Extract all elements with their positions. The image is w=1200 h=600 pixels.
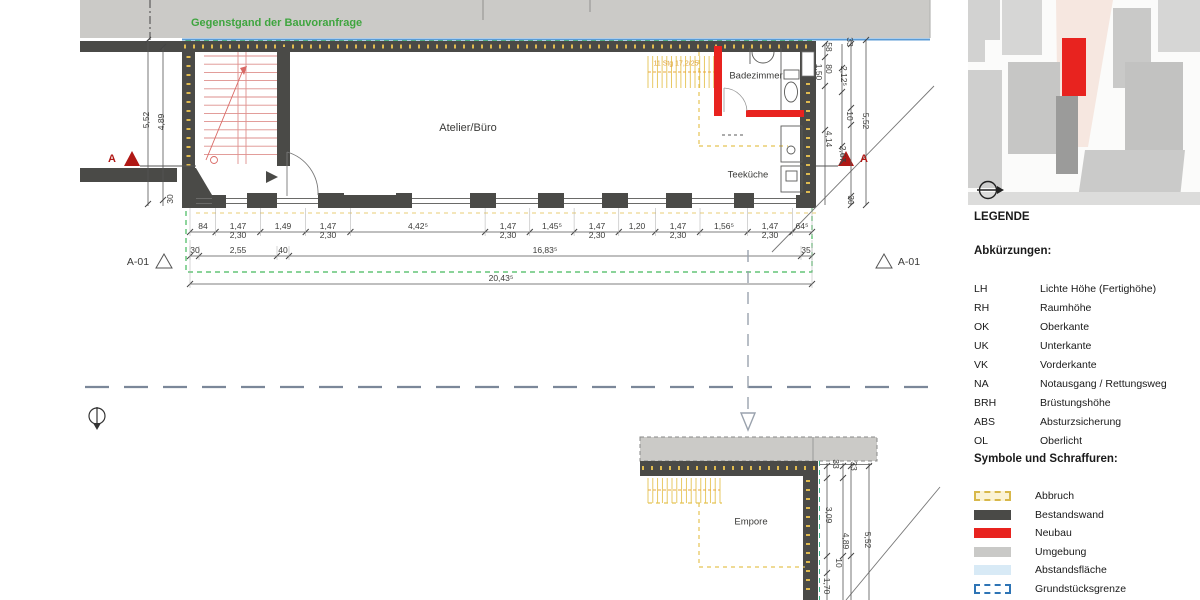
rotation-symbol <box>89 407 105 430</box>
dim-label-pair: 1,472,30 <box>500 222 517 240</box>
dim-label: 1,20 <box>629 221 646 231</box>
dim-label: 30 <box>846 195 856 204</box>
dim-label: 2,12⁵ <box>839 66 849 86</box>
dim-label: 1,45⁵ <box>542 221 562 231</box>
room-label-atelier: Atelier/Büro <box>439 122 496 134</box>
grundstuecksgrenze-swatch <box>974 584 1011 594</box>
dim-label: 58 <box>824 42 834 51</box>
symbol-label: Neubau <box>1035 527 1072 539</box>
entry-arrow-icon <box>266 171 278 183</box>
abbr-term: Oberkante <box>1040 321 1089 333</box>
dim-label: 33 <box>845 37 855 46</box>
dim-label-pair: 1,472,30 <box>670 222 687 240</box>
room-label-empore: Empore <box>734 517 767 528</box>
dim-subvalue: 2,30 <box>762 231 779 240</box>
dim-label: 35 <box>801 245 810 255</box>
legend-symbol-row: Neubau <box>974 527 1200 541</box>
abbr-term: Lichte Höhe (Fertighöhe) <box>1040 283 1156 295</box>
dim-label: 5,52 <box>141 112 151 129</box>
abstandsflaeche-swatch <box>974 565 1011 575</box>
dim-label-pair: 1,472,30 <box>230 222 247 240</box>
legend-symbol-row: Bestandswand <box>974 509 1200 523</box>
stair-note: 11 Stg 17,2/25 <box>653 61 698 68</box>
dim-label: 30 <box>190 245 199 255</box>
lower-plan <box>640 437 940 600</box>
dim-label: 4,89 <box>156 114 166 131</box>
section-label-a-right: A <box>860 153 868 165</box>
dim-label: 5,52 <box>861 113 871 130</box>
legend-abbr-row: LHLichte Höhe (Fertighöhe) <box>974 283 1194 299</box>
legend-abbr-title: Abkürzungen: <box>974 245 1051 257</box>
abbruch-hatch-lower <box>648 478 720 503</box>
abbr-code: ABS <box>974 416 995 428</box>
bestandswand-swatch <box>974 510 1011 520</box>
subject-building-red <box>1062 38 1086 96</box>
legend-symbol-row: Abstandsfläche <box>974 564 1200 578</box>
abbr-code: OL <box>974 435 988 447</box>
abbr-code: UK <box>974 340 989 352</box>
bathroom-fixtures <box>722 48 799 135</box>
bestandswand <box>80 41 182 52</box>
legend-abbr-row: VKVorderkante <box>974 359 1194 375</box>
dim-subvalue: 2,30 <box>670 231 687 240</box>
dim-label: 10 <box>845 111 855 120</box>
dim-label: 4,14 <box>824 131 834 148</box>
dim-subvalue: 2,30 <box>320 231 337 240</box>
dim-label: 33 <box>831 459 841 468</box>
dim-label: 1,70 <box>822 578 832 595</box>
section-triangle-left <box>124 151 140 166</box>
abbr-term: Unterkante <box>1040 340 1091 352</box>
abbr-code: OK <box>974 321 989 333</box>
room-label-badezimmer: Badezimmer <box>729 71 782 82</box>
dim-label: 4,89 <box>841 533 851 550</box>
legend-abbr-row: ABSAbsturzsicherung <box>974 416 1194 432</box>
kitchen-fixtures <box>781 126 802 192</box>
view-direction-arrow <box>741 250 755 430</box>
legend-symbol-row: Abbruch <box>974 490 1200 504</box>
umgebung-swatch <box>974 547 1011 557</box>
site-map <box>968 0 1200 205</box>
elevation-triangle-left <box>156 254 172 268</box>
symbol-label: Abstandsfläche <box>1035 564 1107 576</box>
abbr-code: BRH <box>974 397 996 409</box>
legend-symbol-row: Umgebung <box>974 546 1200 560</box>
legend-abbr-row: BRHBrüstungshöhe <box>974 397 1194 413</box>
legend-symbols-title: Symbole und Schraffuren: <box>974 453 1118 465</box>
symbol-label: Bestandswand <box>1035 509 1104 521</box>
room-label-teekueche: Teeküche <box>728 170 769 181</box>
legend-title: LEGENDE <box>974 211 1030 223</box>
dim-label: 84 <box>198 221 207 231</box>
legend-abbr-row: UKUnterkante <box>974 340 1194 356</box>
dim-label: 30 <box>165 194 175 203</box>
dim-label: 16,83⁵ <box>533 245 558 255</box>
neubau-swatch <box>974 528 1011 538</box>
legend-abbr-row: OLOberlicht <box>974 435 1194 451</box>
dim-label: 10 <box>834 558 844 567</box>
dim-subvalue: 2,30 <box>230 231 247 240</box>
dim-label: 5,52 <box>863 532 873 549</box>
dim-label-pair: 1,472,30 <box>762 222 779 240</box>
abbr-code: VK <box>974 359 988 371</box>
dim-label: 20,43⁵ <box>489 273 514 283</box>
abbr-term: Vorderkante <box>1040 359 1097 371</box>
legend-abbr-row: OKOberkante <box>974 321 1194 337</box>
dim-label: 1,56⁵ <box>714 221 734 231</box>
dim-label: 80 <box>824 64 834 73</box>
elevation-label-a01-left: A-01 <box>127 256 149 268</box>
abbr-term: Raumhöhe <box>1040 302 1091 314</box>
abbr-code: LH <box>974 283 987 295</box>
staircase <box>204 52 277 164</box>
abbr-code: RH <box>974 302 989 314</box>
window-wall <box>196 193 816 208</box>
dim-label-pair: 1,472,30 <box>589 222 606 240</box>
abbr-term: Notausgang / Rettungsweg <box>1040 378 1167 390</box>
legend-symbol-row: Grundstücksgrenze <box>974 583 1200 597</box>
abbr-term: Brüstungshöhe <box>1040 397 1111 409</box>
dim-label: 2,67 <box>838 146 848 163</box>
abbr-term: Oberlicht <box>1040 435 1082 447</box>
dim-label: 33 <box>849 461 859 470</box>
dim-label: 1,50 <box>814 64 824 81</box>
symbol-label: Grundstücksgrenze <box>1035 583 1126 595</box>
door-swing-arc <box>287 152 318 195</box>
dim-label: 2,55 <box>230 245 247 255</box>
dim-label: 3,09 <box>824 507 834 524</box>
neubau-walls <box>714 46 804 117</box>
elevation-triangle-right <box>876 254 892 268</box>
dim-subvalue: 2,30 <box>500 231 517 240</box>
dim-label: 64⁵ <box>796 221 809 231</box>
abbruch-swatch <box>974 491 1011 501</box>
scope-note: Gegenstgand der Bauvoranfrage <box>191 17 362 29</box>
dim-label: 4,42⁵ <box>408 221 428 231</box>
elevation-label-a01-right: A-01 <box>898 256 920 268</box>
legend-abbr-row: RHRaumhöhe <box>974 302 1194 318</box>
floor-plan-sheet: Gegenstgand der Bauvoranfrage Atelier/Bü… <box>0 0 1200 600</box>
dim-subvalue: 2,30 <box>589 231 606 240</box>
existing-building-dark <box>1056 96 1078 174</box>
symbol-label: Abbruch <box>1035 490 1074 502</box>
legend-abbr-row: NANotausgang / Rettungsweg <box>974 378 1194 394</box>
dim-label-pair: 1,472,30 <box>320 222 337 240</box>
abbr-term: Absturzsicherung <box>1040 416 1121 428</box>
section-label-a-left: A <box>108 153 116 165</box>
symbol-label: Umgebung <box>1035 546 1086 558</box>
abbr-code: NA <box>974 378 989 390</box>
dim-label: 1,49 <box>275 221 292 231</box>
dim-label: 40 <box>278 245 287 255</box>
